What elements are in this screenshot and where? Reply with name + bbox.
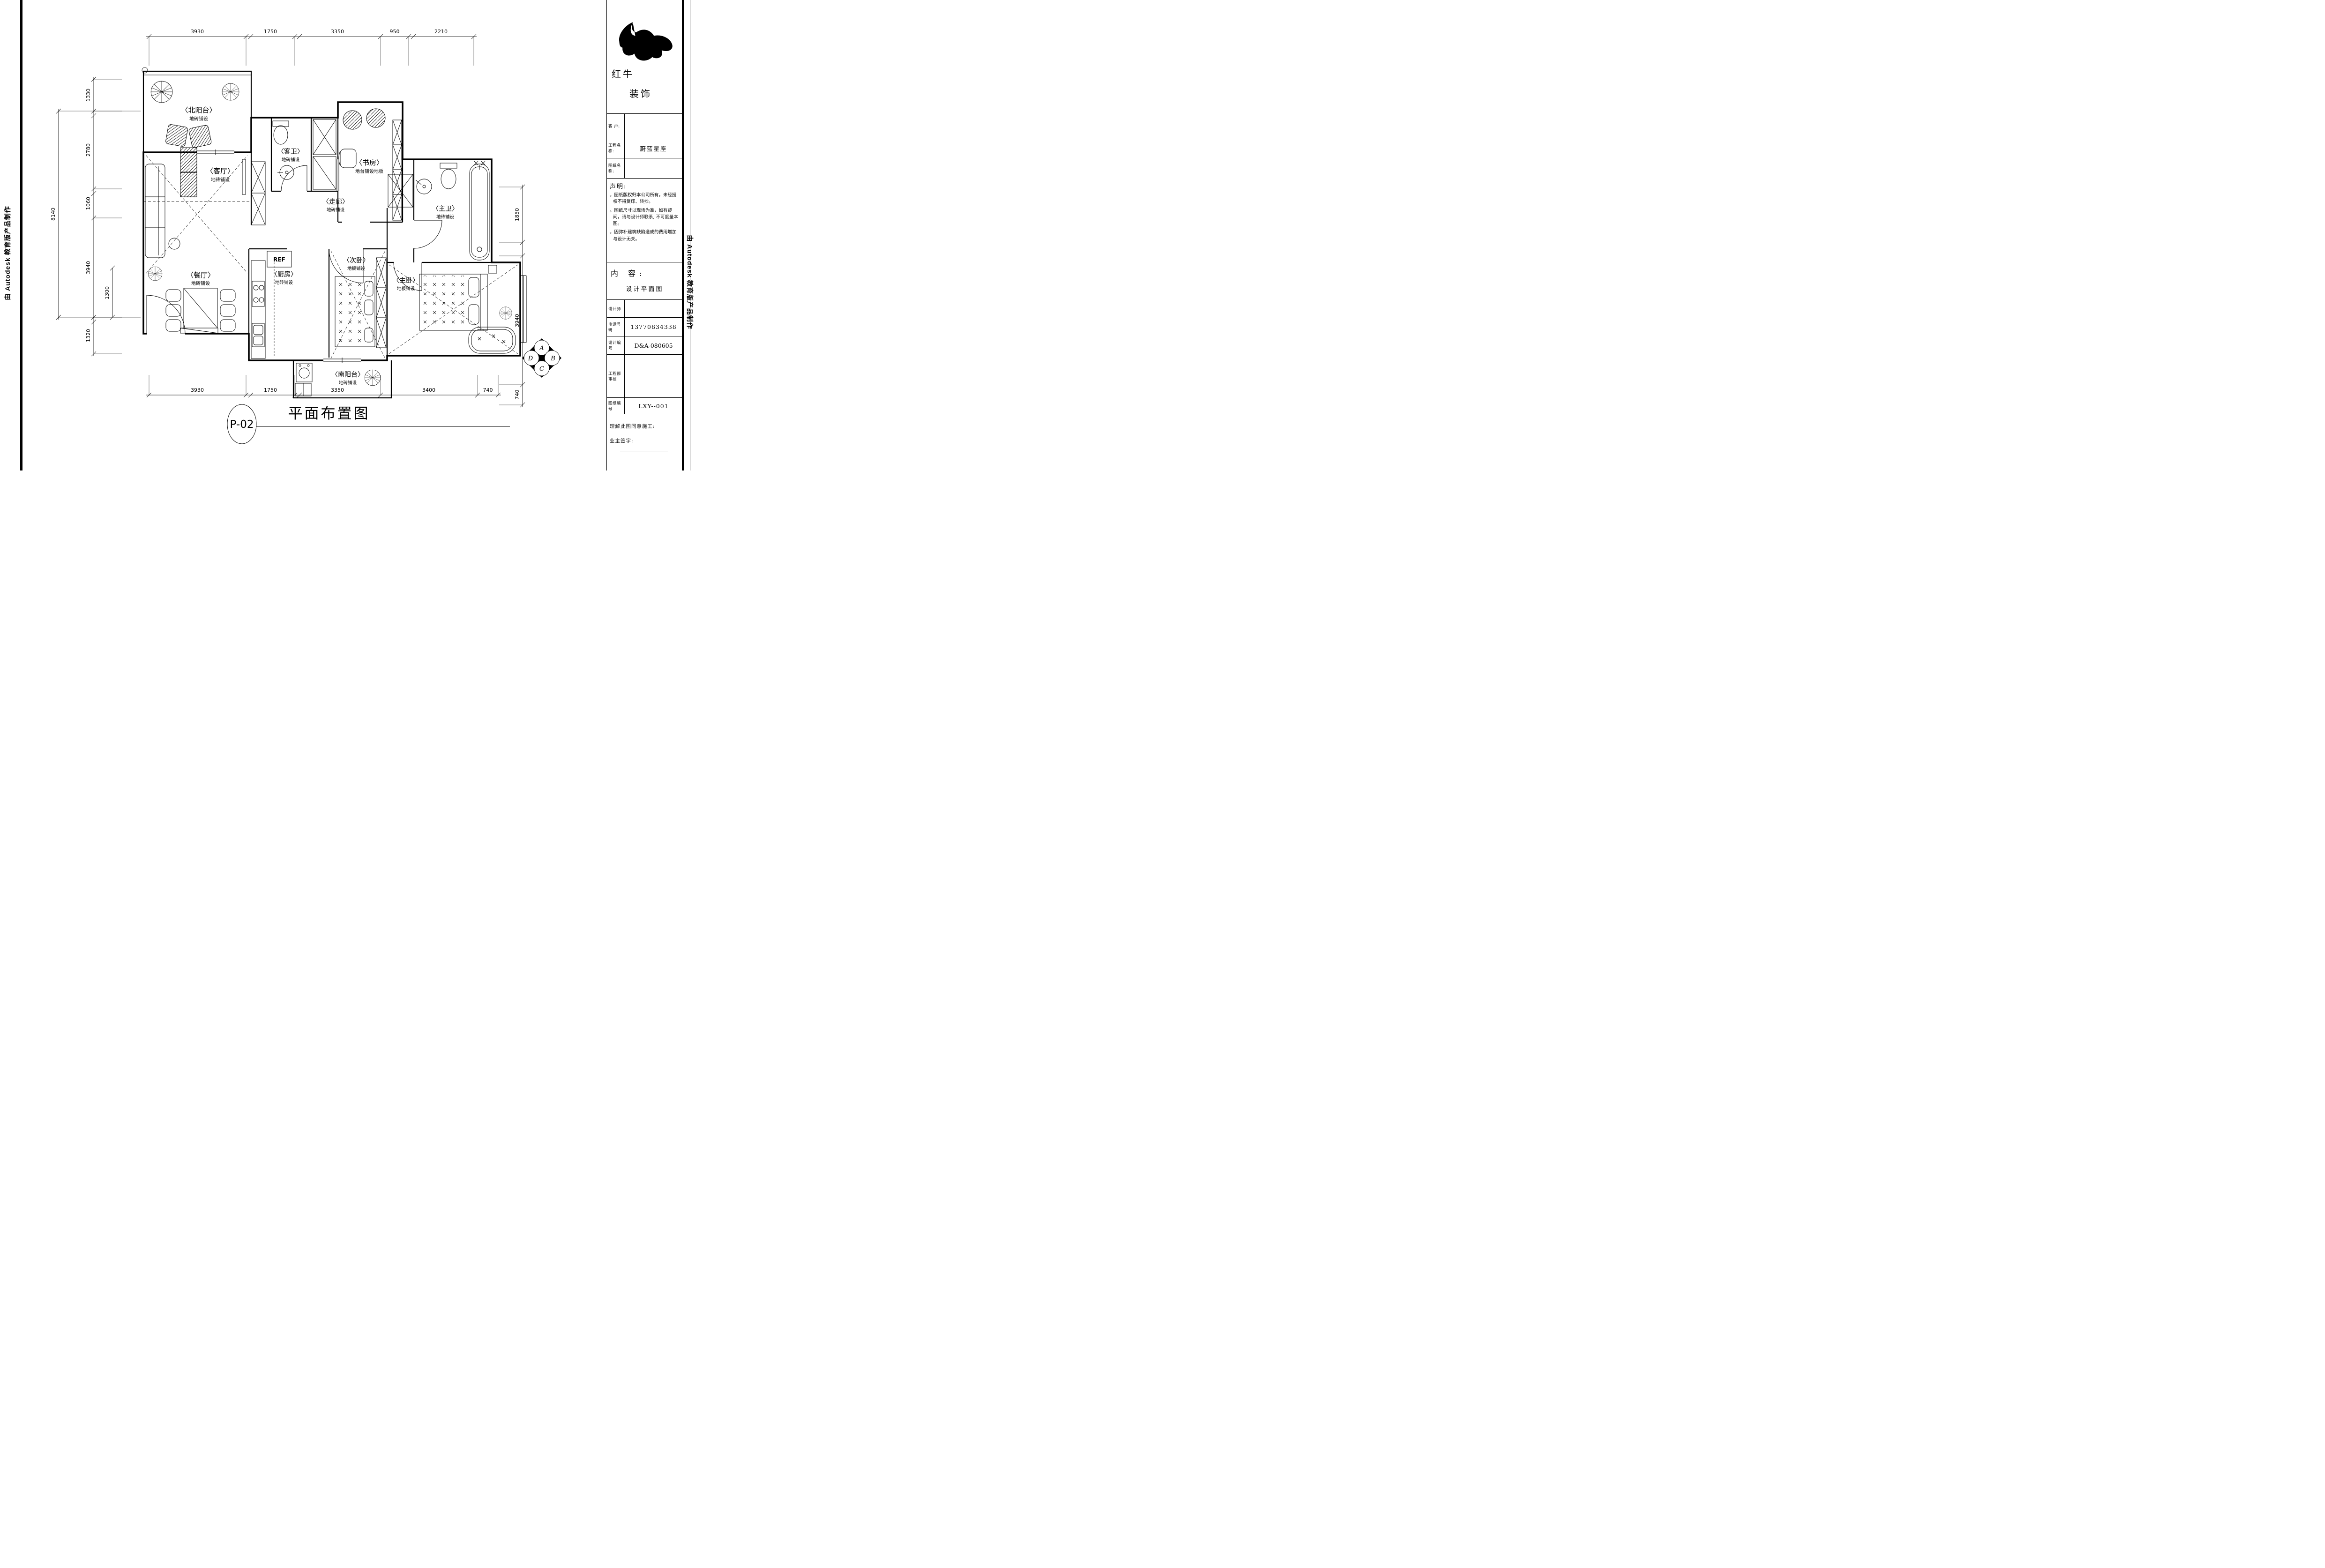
svg-text:地板铺设: 地板铺设 [347, 266, 366, 271]
guest-sink [277, 165, 294, 179]
svg-text:〈客卫〉: 〈客卫〉 [277, 148, 304, 156]
second-bed [335, 276, 375, 347]
phone-label: 电话号码 [607, 318, 625, 336]
room-label: 〈书房〉地台铺设地板 [355, 158, 383, 174]
client-row: 客 户: [607, 113, 682, 138]
svg-text:1850: 1850 [514, 208, 520, 221]
svg-text:〈厨房〉: 〈厨房〉 [271, 271, 297, 278]
svg-text:〈走廊〉: 〈走廊〉 [322, 198, 349, 206]
spa-tub [469, 327, 516, 353]
svg-text:1060: 1060 [85, 197, 91, 210]
content-section: 内 容: 设计平面图 [607, 262, 682, 299]
statement-item: 。图纸尺寸以现场为准，如有疑问，请与设计师联系, 不可度量本图。 [610, 208, 680, 228]
room-label: 〈餐厅〉地砖铺设 [187, 271, 215, 286]
guest-toilet [273, 121, 289, 144]
svg-text:地砖铺设: 地砖铺设 [275, 280, 293, 285]
svg-text:1330: 1330 [85, 89, 91, 102]
room-label: 〈客卫〉地砖铺设 [277, 148, 304, 163]
tree [222, 83, 239, 100]
tree [151, 81, 172, 103]
drawing-name-value [625, 158, 682, 178]
study-wardrobe [393, 120, 402, 220]
master-toilet [440, 163, 457, 189]
designer-row: 设计师 [607, 299, 682, 317]
svg-text:〈北阳台〉: 〈北阳台〉 [181, 106, 216, 114]
room-labels: 〈北阳台〉地砖铺设 〈客厅〉地砖铺设 〈客卫〉地砖铺设 〈书房〉地台铺设地板 〈… [181, 106, 458, 386]
room-label: 〈厨房〉地砖铺设 [271, 271, 297, 285]
ref-label: REF [273, 256, 285, 263]
svg-text:2210: 2210 [434, 29, 448, 35]
autodesk-education-note-left: 由 Autodesk 教育版产品制作 [3, 187, 14, 319]
svg-text:地砖铺设: 地砖铺设 [211, 177, 230, 183]
svg-text:A: A [539, 345, 544, 352]
client-label: 客 户: [607, 114, 625, 138]
svg-text:950: 950 [390, 29, 400, 35]
autodesk-education-note-right: 由 Autodesk 教育版产品制作 [683, 217, 695, 348]
svg-text:〈书房〉: 〈书房〉 [355, 158, 383, 167]
review-row: 工程部审核 [607, 354, 682, 397]
drawing-title: 平面布置图 [288, 405, 370, 422]
stove [252, 281, 264, 306]
svg-text:〈南阳台〉: 〈南阳台〉 [331, 371, 364, 379]
owner-sign-label: 业主签字: [610, 437, 682, 444]
drawing-name-label: 图纸名称: [607, 158, 625, 178]
svg-text:1320: 1320 [85, 329, 91, 342]
room-label: 〈走廊〉地砖铺设 [322, 198, 349, 213]
title-block: 红牛 装饰 客 户: 工程名称: 蔚蓝星座 图纸名称: 声明: 。图纸版权归本公… [606, 0, 682, 470]
study-chairs [343, 109, 385, 129]
svg-text:B: B [550, 355, 555, 362]
project-value: 蔚蓝星座 [625, 138, 682, 158]
room-label: 〈客厅〉地砖铺设 [206, 167, 234, 183]
svg-text:3940: 3940 [85, 261, 91, 274]
room-label: 〈次卧〉地板铺设 [343, 257, 369, 271]
master-sink [416, 179, 432, 194]
bay-plant [500, 307, 512, 319]
corridor-shaft [388, 174, 413, 207]
project-label: 工程名称: [607, 138, 625, 158]
svg-text:地砖铺设: 地砖铺设 [282, 157, 300, 163]
design-no-row: 设计编号 D&A-080605 [607, 336, 682, 354]
svg-text:地台铺设地板: 地台铺设地板 [355, 168, 383, 174]
svg-text:740: 740 [514, 390, 520, 400]
washing-machine [296, 363, 312, 382]
svg-text:8140: 8140 [50, 208, 56, 221]
drawing-number: P-02 [230, 418, 254, 431]
agree-label: 理解此图同意施工: [610, 423, 682, 430]
phone-value: 13770834338 [625, 318, 682, 336]
svg-text:3930: 3930 [191, 29, 204, 35]
svg-text:地砖铺设: 地砖铺设 [327, 207, 345, 213]
sheet-no-row: 图纸编号 LXY--001 [607, 397, 682, 414]
svg-text:地砖铺设: 地砖铺设 [189, 116, 208, 122]
svg-text:1750: 1750 [264, 387, 277, 393]
compass-icon: A B C D [522, 338, 561, 378]
svg-text:地砖铺设: 地砖铺设 [191, 280, 210, 286]
plant [148, 267, 162, 281]
content-heading: 内 容: [607, 262, 682, 278]
svg-text:〈主卫〉: 〈主卫〉 [432, 205, 458, 213]
side-table [169, 238, 180, 249]
svg-text:3350: 3350 [331, 387, 344, 393]
furniture [143, 81, 518, 396]
drawing-name-row: 图纸名称: [607, 158, 682, 178]
room-label: 〈主卧〉地板铺设 [393, 277, 419, 291]
sofa [145, 164, 165, 258]
svg-text:2780: 2780 [85, 143, 91, 157]
statement-section: 声明: 。图纸版权归本公司所有，未经授权不得复印、转抄。 。图纸尺寸以现场为准，… [607, 178, 682, 262]
company-name-line1: 红牛 [612, 67, 634, 80]
balcony-cabinet [295, 383, 311, 396]
client-value [625, 114, 682, 138]
svg-text:〈餐厅〉: 〈餐厅〉 [187, 271, 215, 279]
designer-label: 设计师 [607, 300, 625, 317]
sheet-no-value: LXY--001 [625, 398, 682, 414]
second-bedroom-wardrobe [376, 258, 386, 348]
svg-text:3930: 3930 [191, 387, 204, 393]
design-no-label: 设计编号 [607, 336, 625, 354]
svg-text:D: D [528, 355, 533, 362]
svg-text:3940: 3940 [514, 314, 520, 327]
design-no-value: D&A-080605 [625, 336, 682, 354]
kitchen-sink [252, 323, 264, 347]
svg-text:3350: 3350 [331, 29, 344, 35]
company-name-line2: 装饰 [629, 86, 652, 100]
project-row: 工程名称: 蔚蓝星座 [607, 138, 682, 158]
signature-line [620, 451, 668, 451]
sideboard [180, 328, 218, 333]
svg-text:〈客厅〉: 〈客厅〉 [206, 167, 234, 175]
review-value [625, 355, 682, 397]
svg-text:1750: 1750 [264, 29, 277, 35]
svg-text:740: 740 [483, 387, 493, 393]
statement-heading: 声明: [610, 181, 680, 190]
redbull-logo-icon [611, 19, 679, 66]
svg-text:3400: 3400 [422, 387, 435, 393]
desk-chair [339, 149, 356, 168]
armchairs [165, 124, 212, 148]
sheet-no-label: 图纸编号 [607, 398, 625, 414]
svg-text:地砖铺设: 地砖铺设 [339, 380, 357, 386]
logo-cell: 红牛 装饰 [607, 0, 682, 113]
svg-text:地板铺设: 地板铺设 [397, 286, 415, 291]
floor-plan-canvas: 〈北阳台〉地砖铺设 〈客厅〉地砖铺设 〈客卫〉地砖铺设 〈书房〉地台铺设地板 〈… [0, 0, 606, 470]
svg-text:〈次卧〉: 〈次卧〉 [343, 257, 369, 264]
master-bed [419, 265, 497, 330]
left-border-bar [20, 0, 22, 470]
bathtub [470, 161, 489, 260]
room-label: 〈主卫〉地砖铺设 [432, 205, 458, 220]
coffee-table [180, 148, 197, 197]
room-label: 〈北阳台〉地砖铺设 [181, 106, 216, 122]
review-label: 工程部审核 [607, 355, 625, 397]
drawing-title-group: P-02 平面布置图 [227, 404, 510, 444]
svg-text:C: C [539, 366, 544, 373]
dining-table [166, 288, 235, 331]
hall-closet [313, 119, 336, 189]
signature-section: 理解此图同意施工: 业主签字: [607, 414, 682, 470]
svg-text:1300: 1300 [104, 286, 110, 299]
tv-feature-wall [242, 159, 265, 225]
content-value: 设计平面图 [607, 284, 682, 293]
svg-text:地砖铺设: 地砖铺设 [436, 214, 455, 220]
balcony-plant [365, 370, 381, 386]
room-label: 〈南阳台〉地砖铺设 [331, 371, 364, 386]
svg-text:〈主卧〉: 〈主卧〉 [393, 277, 419, 284]
statement-item: 。图纸版权归本公司所有，未经授权不得复印、转抄。 [610, 192, 680, 206]
designer-value [625, 300, 682, 317]
statement-item: 。因弥补建筑缺陷造成的费用增加与设计无关。 [610, 229, 680, 243]
phone-row: 电话号码 13770834338 [607, 317, 682, 336]
